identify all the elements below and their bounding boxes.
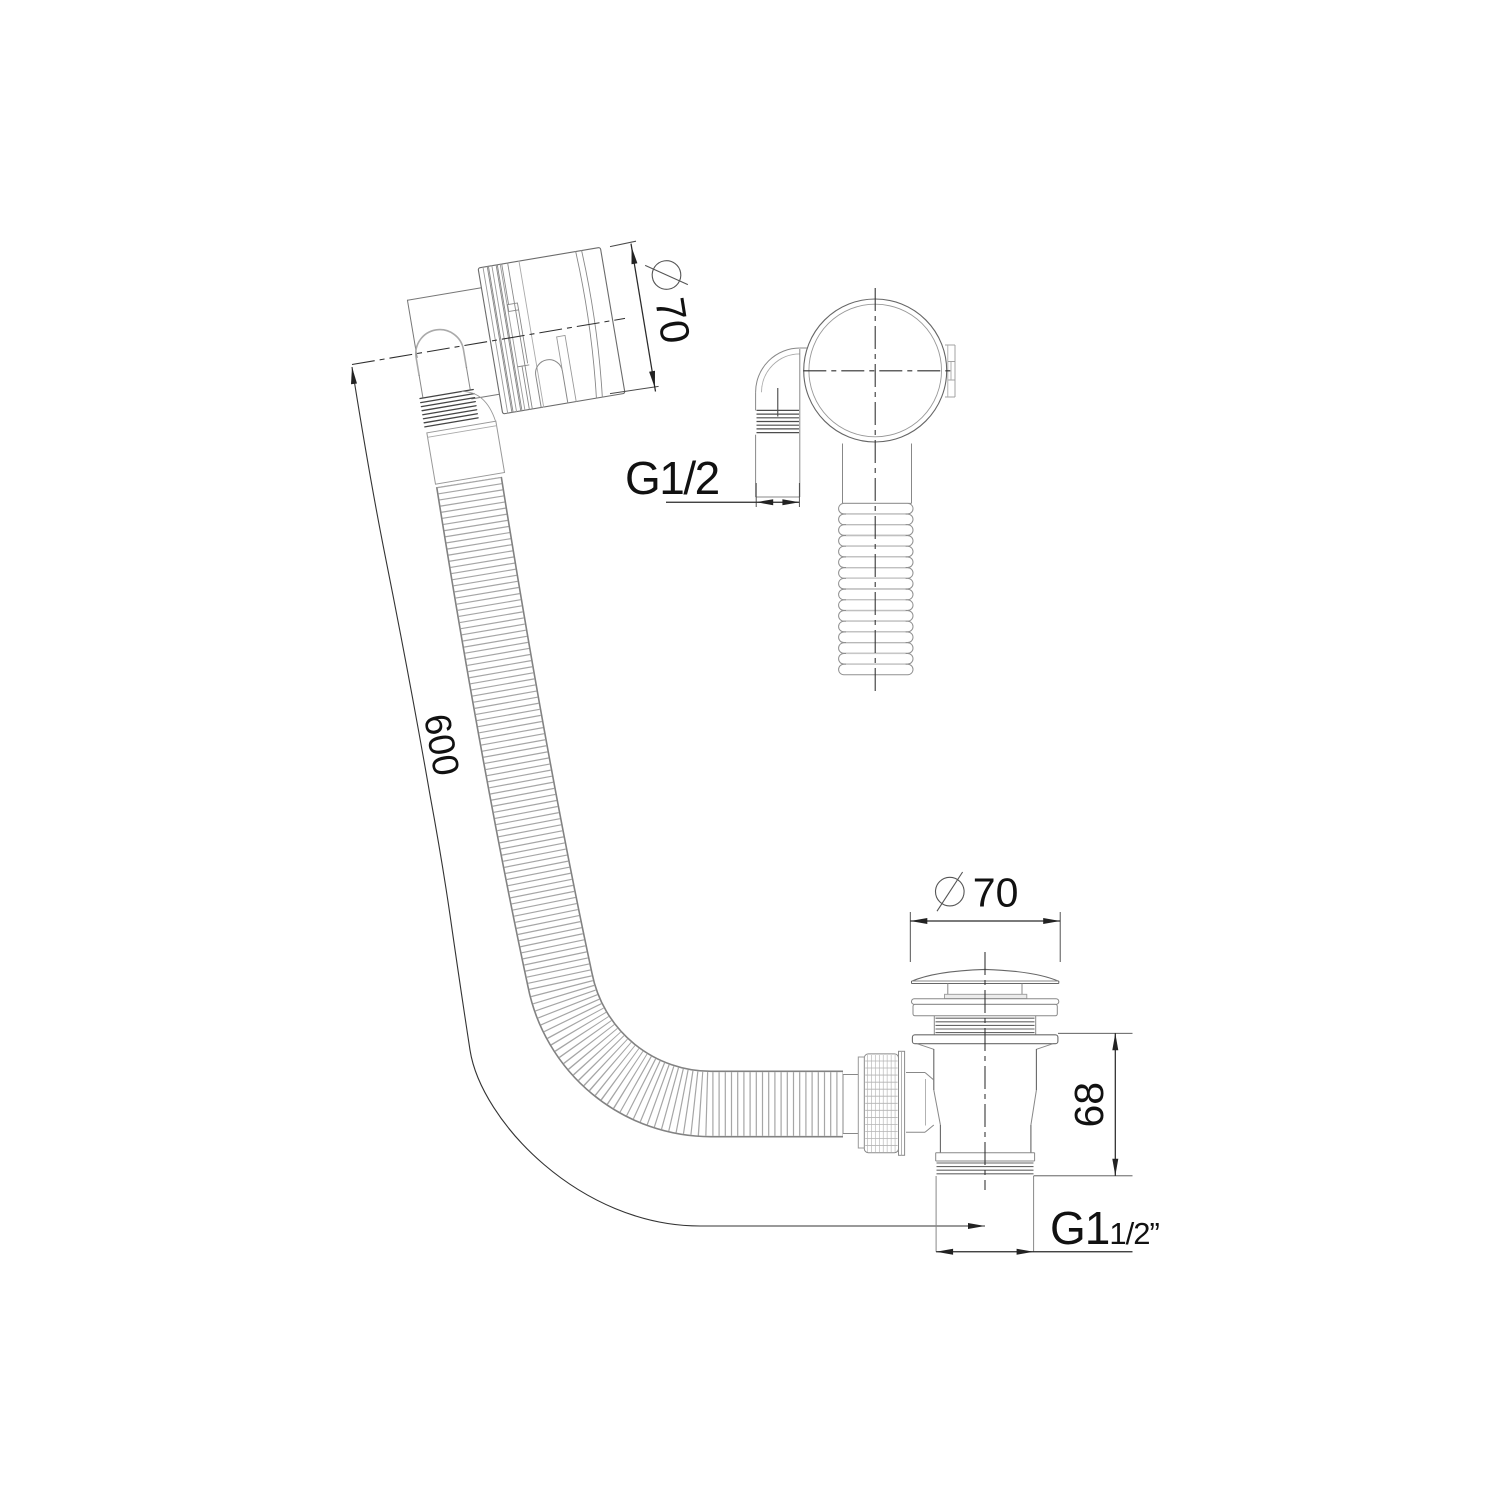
svg-text:70: 70 [646, 294, 699, 346]
svg-text:70: 70 [973, 870, 1019, 916]
svg-text:68: 68 [1066, 1082, 1112, 1128]
svg-text:G1/2: G1/2 [625, 452, 719, 504]
